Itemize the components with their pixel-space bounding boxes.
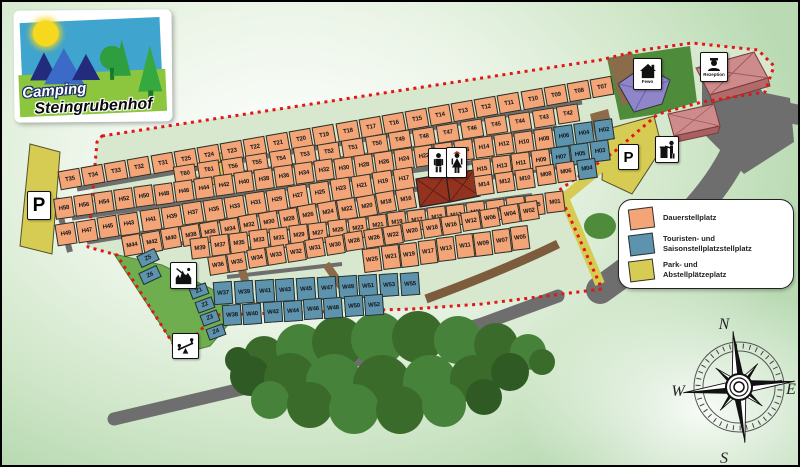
pitch-T08: T08 (566, 80, 591, 103)
pitch-W02: W02 (518, 200, 540, 222)
climbing-frame-glyph (174, 266, 193, 285)
pitch-T35: T35 (58, 168, 83, 191)
seesaw-playground-icon (172, 333, 199, 359)
waste-disposal-icon (655, 136, 679, 163)
legend-item-dauerstellplatz: Dauerstellplatz (629, 208, 783, 229)
pitch-H14: H14 (473, 136, 495, 159)
legend-swatch-blue (628, 232, 655, 256)
pitch-W39: W39 (233, 280, 254, 304)
pitch-H44: H44 (193, 176, 215, 199)
pitch-W43: W43 (275, 278, 296, 302)
person-icon (706, 57, 722, 72)
pitch-W33: W33 (265, 244, 287, 266)
pitch-H50: H50 (133, 185, 155, 208)
pitch-H45: H45 (97, 215, 120, 240)
wc-men-icon (428, 148, 448, 178)
pitch-W35: W35 (227, 251, 249, 273)
pitch-W05: W05 (510, 225, 531, 251)
pitch-M06: M06 (556, 161, 578, 183)
pitch-W42: W42 (262, 301, 282, 323)
pitch-H34: H34 (293, 162, 315, 185)
pitch-M40: M40 (160, 226, 182, 250)
man-figure (432, 152, 445, 174)
pitch-H49: H49 (54, 222, 77, 247)
pitch-T10: T10 (520, 88, 545, 111)
reception-icon: Rezeption (700, 52, 728, 82)
campsite-map: N E S W T35T34T33T32T31T25T24T23T22T21T2… (0, 0, 800, 467)
pitch-H47: H47 (76, 218, 99, 243)
pitch-H38: H38 (253, 167, 275, 190)
pitch-H54: H54 (93, 190, 115, 213)
parking-left-icon: P (27, 191, 51, 220)
pitch-W06: W06 (479, 207, 501, 229)
pitch-T43: T43 (532, 107, 557, 128)
legend-label: Touristen- und Saisonstellplatzstellplat… (663, 234, 752, 254)
pitch-H48: H48 (153, 182, 175, 205)
pitch-W34: W34 (246, 247, 268, 269)
pitch-M08: M08 (535, 164, 557, 186)
pitch-M14: M14 (473, 174, 495, 196)
pitch-H36: H36 (273, 164, 295, 187)
pitch-T07: T07 (590, 76, 615, 99)
pitch-W11: W11 (454, 233, 475, 259)
pitch-W48: W48 (323, 297, 343, 319)
pitch-W19: W19 (399, 241, 420, 267)
woman-figure (450, 151, 464, 174)
pitch-W40: W40 (242, 302, 262, 324)
pitch-T12: T12 (474, 96, 499, 119)
pitch-H41: H41 (139, 208, 162, 233)
pitch-W37: W37 (213, 281, 234, 305)
seesaw-glyph (176, 337, 195, 355)
campsite-logo: Camping Steingrubenhof (14, 9, 173, 122)
sun-icon (33, 20, 59, 46)
fewo-icon: Fewo (633, 58, 662, 90)
pitch-W31: W31 (304, 237, 326, 259)
pitch-W20: W20 (402, 220, 424, 242)
pitch-T32: T32 (127, 156, 152, 179)
pitch-W41: W41 (254, 279, 275, 303)
pitch-W30: W30 (324, 234, 346, 256)
pitch-M04: M04 (576, 158, 598, 180)
tree-icon (113, 40, 131, 76)
wc-women-icon (446, 147, 467, 178)
parking-right-icon: P (618, 144, 639, 170)
pitch-W18: W18 (421, 217, 443, 239)
pitch-W22: W22 (382, 224, 404, 246)
pitch-M01: M01 (544, 190, 565, 213)
pitch-W04: W04 (499, 204, 521, 226)
house-icon (638, 63, 658, 79)
pitch-W21: W21 (380, 244, 401, 270)
pitch-T42: T42 (556, 103, 581, 124)
pitch-H46: H46 (173, 179, 195, 202)
pitch-H40: H40 (233, 170, 255, 193)
legend-item-park: Park- und Abstellplätzeplatz (629, 260, 783, 281)
pitch-W32: W32 (285, 241, 307, 263)
pitch-Z4: Z4 (205, 323, 226, 340)
parking-letter: P (623, 150, 633, 165)
logo-text-steingrubenhof: Steingrubenhof (34, 95, 153, 118)
pitch-W52: W52 (364, 294, 384, 316)
pitch-T34: T34 (81, 164, 106, 187)
pitch-T11: T11 (497, 92, 522, 115)
pitch-H02: H02 (593, 118, 615, 141)
legend-label: Park- und Abstellplätzeplatz (663, 260, 726, 280)
pitch-W46: W46 (303, 298, 323, 320)
pitch-W44: W44 (283, 300, 303, 322)
playground-icon (170, 262, 197, 289)
pitch-W07: W07 (491, 228, 512, 254)
legend-item-touristen: Touristen- und Saisonstellplatzstellplat… (629, 234, 783, 255)
pitch-W50: W50 (343, 295, 363, 317)
tree-icon (138, 45, 162, 91)
fewo-label: Fewo (642, 80, 654, 85)
pitch-W17: W17 (417, 239, 438, 265)
pitch-M12: M12 (494, 171, 516, 193)
parking-letter: P (33, 196, 46, 215)
pitch-M10: M10 (514, 167, 536, 189)
pitch-M16: M16 (395, 187, 417, 211)
reception-label: Rezeption (703, 73, 725, 78)
pitch-H42: H42 (213, 173, 235, 196)
pitch-W25: W25 (362, 247, 383, 273)
pitch-W12: W12 (460, 210, 482, 232)
pitch-W55: W55 (400, 272, 421, 296)
map-legend: Dauerstellplatz Touristen- und Saisonste… (618, 199, 794, 289)
legend-swatch-orange (628, 206, 655, 230)
legend-label: Dauerstellplatz (663, 213, 716, 223)
pitch-W38: W38 (222, 304, 242, 326)
pitch-W13: W13 (436, 236, 457, 262)
pitch-W16: W16 (440, 214, 462, 236)
legend-swatch-yellow (628, 258, 655, 282)
pitch-T31: T31 (150, 152, 175, 175)
pitch-T44: T44 (508, 111, 533, 132)
pitch-W36: W36 (207, 254, 229, 276)
pitch-T33: T33 (104, 160, 129, 183)
trash-person-glyph (659, 140, 676, 159)
tent-icon (72, 54, 100, 80)
pitch-H58: H58 (53, 196, 75, 219)
pitch-T09: T09 (543, 84, 568, 107)
pitch-W09: W09 (473, 230, 494, 256)
pitch-H52: H52 (113, 188, 135, 211)
pitch-H56: H56 (73, 193, 95, 216)
